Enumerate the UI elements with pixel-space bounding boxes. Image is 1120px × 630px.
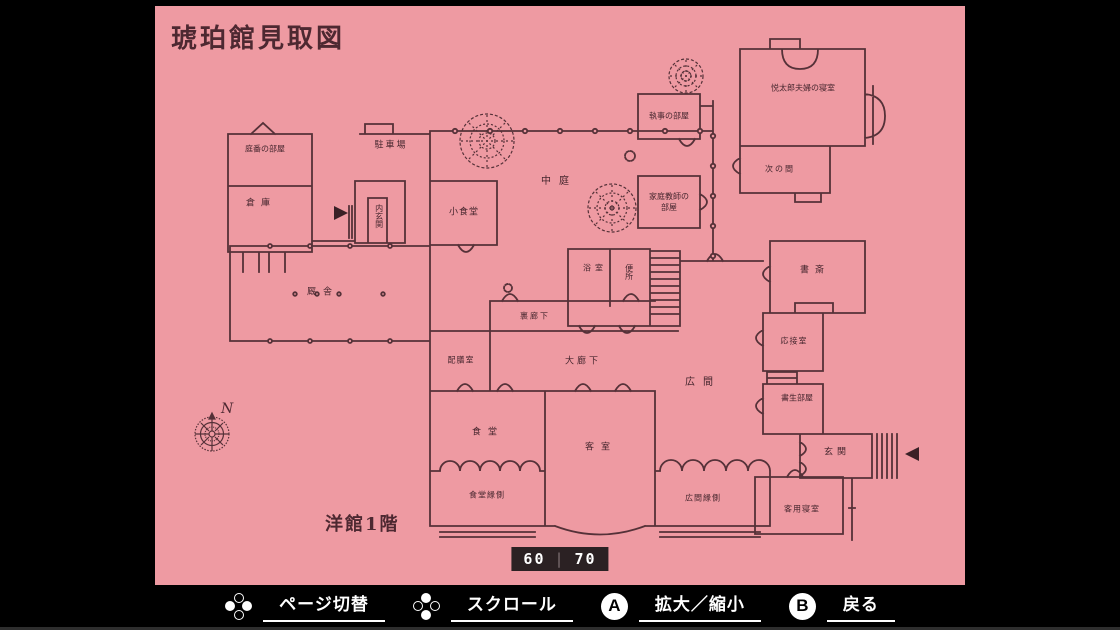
shrub-icon [625,151,635,161]
tree-icon [669,59,703,93]
page-title: 琥珀館見取図 [171,18,345,55]
scroll-control[interactable]: スクロール [413,590,573,622]
zoom-control[interactable]: A拡大／縮小 [601,590,761,622]
inner-entrance-pointer-icon [334,206,348,220]
floorplan-page: N 庭番の部屋倉庫駐車場内玄関小食堂中庭執事の部屋家庭教師の 部屋悦太郎夫婦の寝… [155,6,965,585]
control-hint-bar: ページ切替スクロールA拡大／縮小B戻る [0,585,1120,627]
page-indicator: 60 | 70 [511,547,608,571]
back-control[interactable]: B戻る [789,590,895,622]
page-divider: | [554,550,565,568]
main-entrance-pointer-icon [905,447,919,461]
control-label: 拡大／縮小 [639,590,761,622]
b-button-icon: B [789,593,816,620]
control-label: ページ切替 [263,590,385,622]
floor-label: 洋館1階 [325,510,400,536]
floorplan-walls [228,39,897,540]
page-current: 60 [523,550,545,568]
wall-posts [268,129,715,343]
control-label: スクロール [451,590,573,622]
page-switch-control[interactable]: ページ切替 [225,590,385,622]
dpad-horizontal-icon [225,593,252,620]
page-total: 70 [575,550,597,568]
tree-icon [460,114,514,168]
dpad-vertical-icon [413,593,440,620]
compass-rose-icon: N [195,401,234,451]
shrub-icon [504,284,512,292]
floorplan-drawing: N [155,6,965,585]
tree-icon [588,184,636,232]
a-button-icon: A [601,593,628,620]
compass-n-label: N [220,401,234,417]
game-screen: N 庭番の部屋倉庫駐車場内玄関小食堂中庭執事の部屋家庭教師の 部屋悦太郎夫婦の寝… [0,0,1120,630]
control-label: 戻る [827,590,895,622]
